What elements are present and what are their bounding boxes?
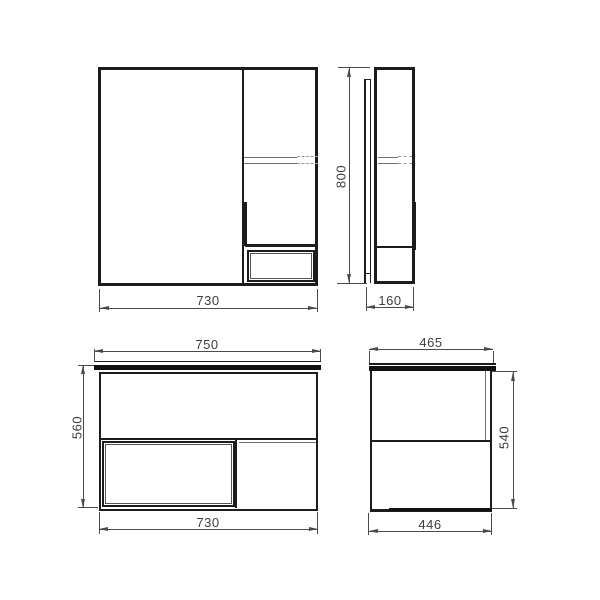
technical-drawing-canvas: 730 800 160 750 — [0, 0, 600, 600]
dim-arrow — [369, 347, 378, 351]
dim-arrow — [511, 372, 515, 381]
vanity-body-depth-dim-label: 446 — [380, 518, 480, 531]
dim-arrow — [484, 347, 493, 351]
dimension-line — [513, 372, 514, 509]
extension-line — [369, 351, 370, 363]
back-panel-line — [485, 371, 487, 441]
vanity-side-view: 465 540 446 — [0, 0, 600, 600]
vanity-countertop-depth-dim-label: 465 — [381, 336, 481, 349]
extension-line — [493, 351, 494, 363]
dim-arrow — [483, 529, 492, 533]
countertop-edge-band — [369, 366, 497, 371]
dim-arrow — [511, 499, 515, 508]
countertop-surface-line — [369, 363, 496, 364]
vanity-side-height-dim-label: 540 — [498, 408, 511, 468]
drawer-divider-line — [370, 440, 492, 442]
dim-arrow — [369, 529, 378, 533]
bottom-panel-band — [389, 508, 491, 512]
